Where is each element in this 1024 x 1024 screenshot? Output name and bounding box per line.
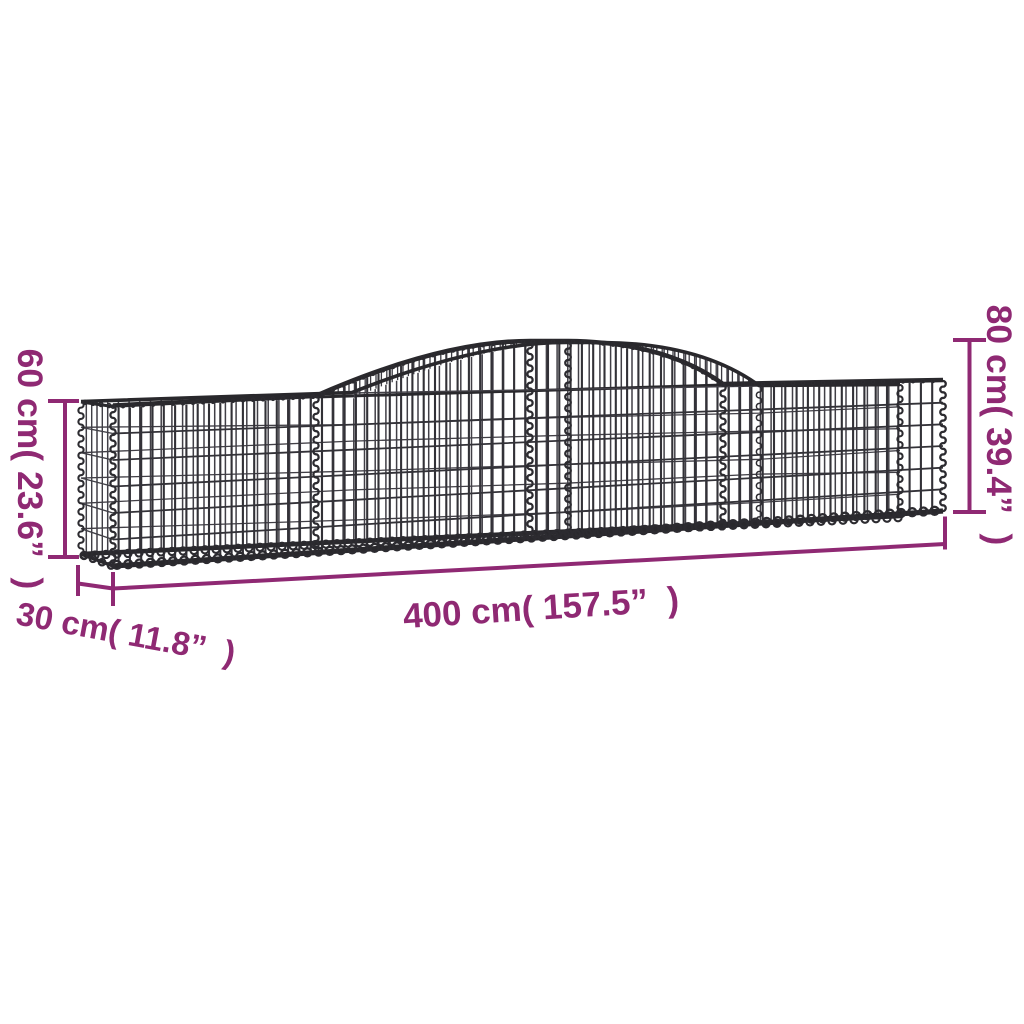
svg-text:80 cm( 39.4” ): 80 cm( 39.4” ) [979, 305, 1019, 546]
svg-text:60 cm( 23.6” ): 60 cm( 23.6” ) [10, 349, 50, 590]
